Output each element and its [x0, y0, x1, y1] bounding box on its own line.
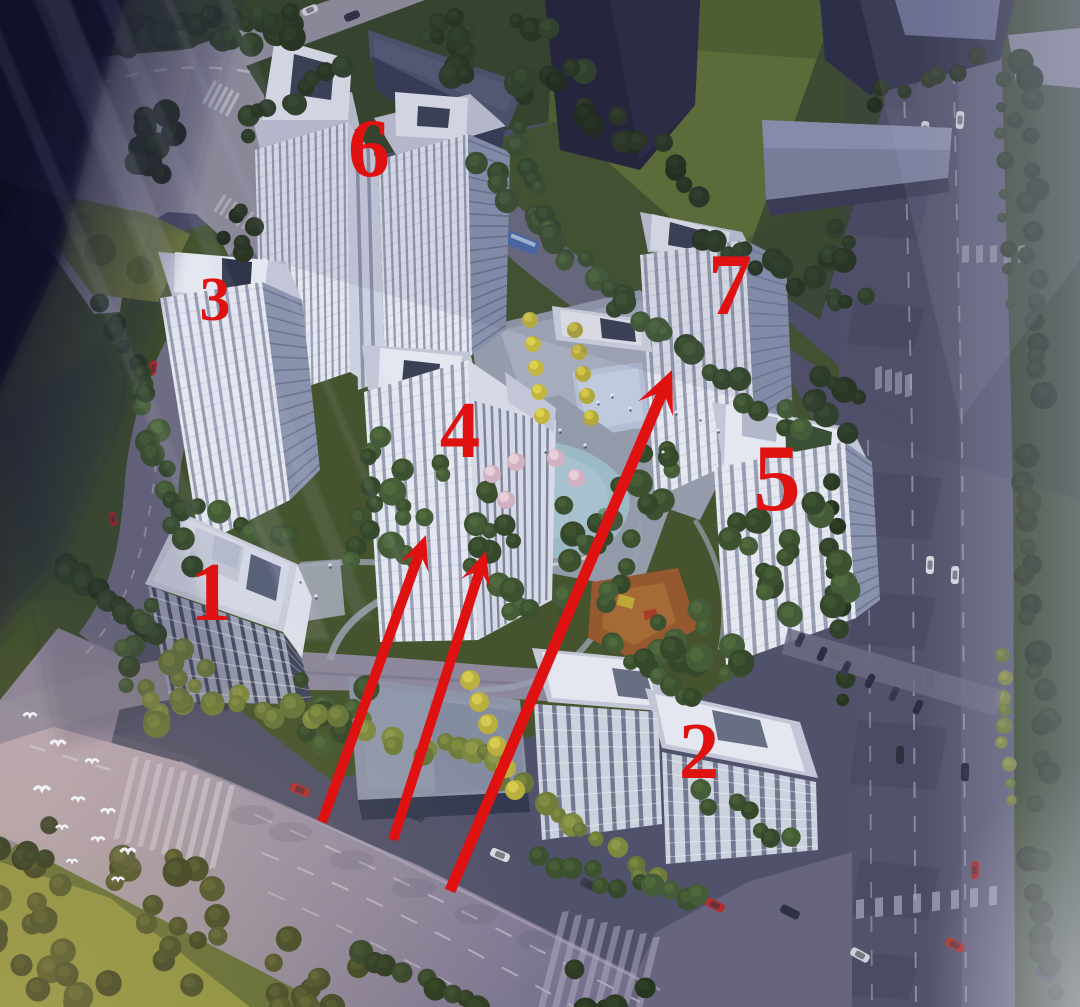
svg-text:6: 6: [348, 102, 390, 195]
svg-text:5: 5: [753, 425, 801, 531]
svg-text:3: 3: [200, 266, 231, 334]
svg-text:7: 7: [708, 237, 752, 334]
svg-text:4: 4: [440, 385, 481, 475]
svg-text:1: 1: [190, 546, 232, 639]
svg-text:2: 2: [679, 706, 720, 796]
